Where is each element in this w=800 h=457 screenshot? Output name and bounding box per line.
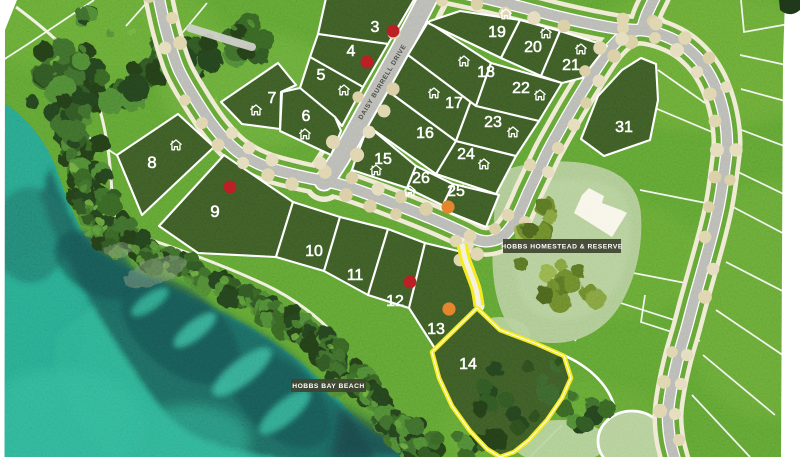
svg-text:23: 23 bbox=[484, 114, 502, 131]
svg-text:22: 22 bbox=[512, 80, 530, 97]
svg-text:25: 25 bbox=[447, 183, 465, 200]
svg-text:26: 26 bbox=[412, 170, 430, 187]
svg-text:HOBBS HOMESTEAD & RESERVE: HOBBS HOMESTEAD & RESERVE bbox=[501, 243, 623, 250]
svg-text:21: 21 bbox=[562, 57, 580, 74]
svg-text:31: 31 bbox=[615, 119, 633, 136]
svg-text:6: 6 bbox=[302, 108, 311, 125]
svg-text:3: 3 bbox=[371, 19, 380, 36]
svg-text:13: 13 bbox=[427, 321, 445, 338]
svg-text:20: 20 bbox=[524, 39, 542, 56]
svg-text:11: 11 bbox=[347, 267, 364, 284]
svg-text:HOBBS BAY BEACH: HOBBS BAY BEACH bbox=[292, 383, 365, 390]
svg-text:5: 5 bbox=[317, 67, 326, 84]
svg-text:14: 14 bbox=[459, 356, 477, 373]
svg-text:4: 4 bbox=[347, 43, 356, 60]
svg-text:17: 17 bbox=[445, 95, 463, 112]
svg-text:24: 24 bbox=[457, 146, 475, 163]
svg-text:10: 10 bbox=[305, 243, 323, 260]
svg-text:9: 9 bbox=[210, 202, 219, 221]
svg-text:8: 8 bbox=[147, 153, 156, 172]
svg-text:12: 12 bbox=[386, 293, 404, 310]
svg-text:18: 18 bbox=[477, 64, 495, 81]
svg-text:19: 19 bbox=[488, 24, 506, 41]
svg-text:16: 16 bbox=[416, 125, 434, 142]
svg-text:7: 7 bbox=[268, 90, 277, 107]
